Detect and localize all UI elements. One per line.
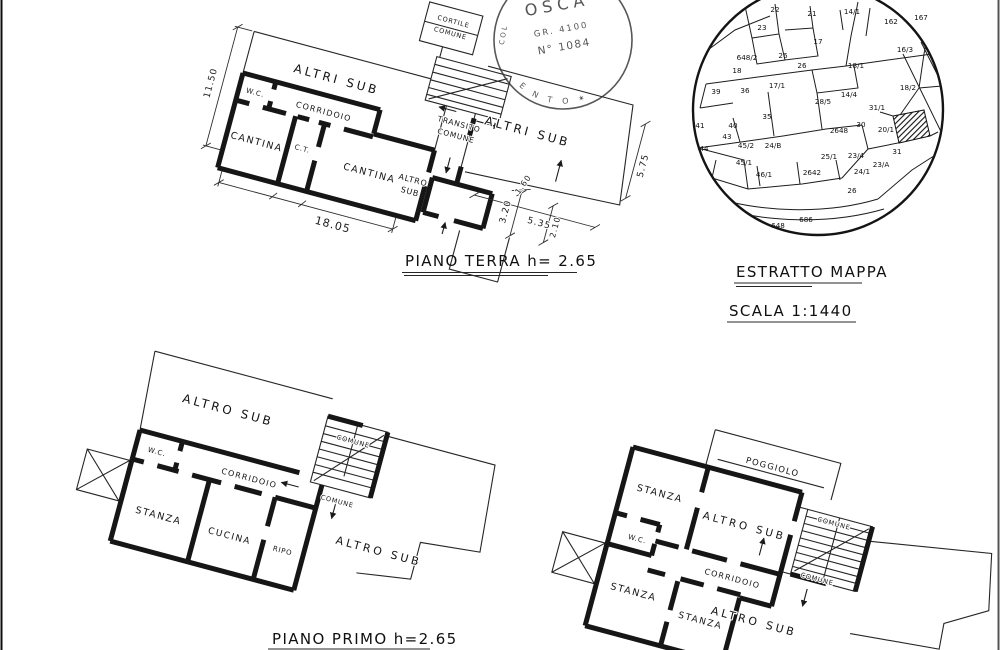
dim-3-20: 3.20 — [498, 199, 514, 225]
room-label-ct: C.T. — [294, 143, 312, 155]
svg-text:14/1: 14/1 — [844, 7, 860, 16]
svg-text:2642: 2642 — [803, 168, 821, 177]
svg-text:35: 35 — [762, 112, 771, 121]
room-label-stanza-top: STANZA — [635, 483, 684, 506]
map-captions: ESTRATTO MAPPA SCALA 1:1440 — [727, 263, 888, 322]
room-label-wc: W.C. — [627, 533, 647, 546]
piano-primo-caption: PIANO PRIMO h=2.65 — [268, 630, 458, 649]
room-label-altro-2: SUB — [400, 185, 421, 199]
piano-primo-walls — [110, 370, 388, 603]
svg-text:18: 18 — [732, 66, 742, 75]
svg-text:167: 167 — [914, 13, 928, 22]
svg-text:23/A: 23/A — [873, 160, 890, 169]
svg-text:26: 26 — [778, 51, 788, 60]
room-label-cucina: CUCINA — [207, 526, 252, 547]
svg-text:41: 41 — [695, 121, 704, 130]
room-label-stanza-bl: STANZA — [609, 581, 658, 604]
svg-text:162: 162 — [884, 17, 898, 26]
dim-5-75: 5.75 — [636, 153, 652, 179]
dim-11-50: 11.50 — [202, 67, 220, 99]
stamp-name: OSCA — [523, 0, 590, 20]
map-parcel-lines — [697, 2, 994, 220]
label-comune-top: COMUNE — [817, 515, 852, 531]
svg-text:24/B: 24/B — [765, 141, 782, 150]
svg-text:22: 22 — [770, 5, 779, 14]
dim-2-10: 2.10 — [548, 215, 562, 238]
svg-text:31: 31 — [892, 147, 901, 156]
room-label-poggiolo: POGGIOLO — [745, 456, 801, 480]
svg-text:45/2: 45/2 — [738, 141, 754, 150]
label-comune-bottom: COMUNE — [320, 493, 355, 509]
map-extract: 22 21 23 17 26 648/2 16/3 18/1 18/2 18 2… — [693, 0, 994, 235]
svg-text:648/2: 648/2 — [737, 53, 758, 62]
room-label-wc: W.C. — [245, 87, 265, 100]
svg-text:23/4: 23/4 — [848, 151, 865, 160]
room-label-cantina-left: CANTINA — [229, 130, 284, 155]
svg-text:648: 648 — [771, 221, 785, 230]
room-label-stanza: STANZA — [134, 505, 183, 528]
caption-piano-terra: PIANO TERRA h= 2.65 — [405, 252, 597, 270]
svg-text:31/1: 31/1 — [869, 103, 885, 112]
room-label-altri-sub-right: ALTRI SUB — [483, 113, 572, 149]
plan-bottom-right: STANZA POGGIOLO ALTRO SUB COMUNE COMUNE … — [541, 398, 1000, 650]
svg-text:20/1: 20/1 — [878, 125, 894, 134]
stamp-rim-left: C O L — [498, 26, 509, 46]
svg-text:18/2: 18/2 — [900, 83, 916, 92]
svg-text:2648: 2648 — [830, 126, 849, 135]
svg-text:23: 23 — [757, 23, 766, 32]
map-scale: SCALA 1:1440 — [729, 302, 853, 320]
svg-text:14/4: 14/4 — [841, 90, 858, 99]
dim-18-05: 18.05 — [313, 214, 352, 236]
svg-text:30: 30 — [856, 120, 866, 129]
subject-parcel-hatched — [893, 110, 930, 143]
svg-text:24/1: 24/1 — [854, 167, 870, 176]
room-label-wc: W.C. — [147, 446, 167, 459]
surveyor-stamp: OSCA GR. 4100 N° 1084 ✶ T R E N T O ✶ C … — [483, 0, 643, 120]
room-label-corridoio: CORRIDOIO — [220, 467, 278, 491]
map-title: ESTRATTO MAPPA — [736, 263, 888, 281]
svg-text:26: 26 — [797, 61, 807, 70]
stamp-number: N° 1084 — [537, 36, 592, 57]
room-label-altro-sub-right: ALTRO SUB — [334, 534, 423, 569]
svg-text:28/5: 28/5 — [815, 97, 831, 106]
svg-text:36: 36 — [740, 86, 750, 95]
altro-sub-room-walls — [423, 178, 492, 229]
svg-text:17: 17 — [813, 37, 822, 46]
svg-text:43: 43 — [722, 132, 731, 141]
svg-text:26: 26 — [847, 186, 857, 195]
svg-text:40: 40 — [728, 121, 738, 130]
svg-text:25/1: 25/1 — [821, 152, 837, 161]
plan-right-thin-lines — [552, 398, 1000, 650]
svg-text:21: 21 — [807, 9, 816, 18]
svg-text:44: 44 — [699, 144, 709, 153]
svg-text:45/1: 45/1 — [736, 158, 752, 167]
room-label-ripo: RIPO — [272, 545, 293, 558]
room-label-corridoio: CORRIDOIO — [703, 567, 761, 591]
dim-5-35: 5.35 — [526, 216, 552, 232]
label-comune-top: COMUNE — [336, 433, 371, 449]
plan-piano-primo: ALTRO SUB W.C. CORRIDOIO STANZA CUCINA R… — [66, 341, 509, 634]
svg-text:18/1: 18/1 — [848, 61, 864, 70]
scanned-cadastral-sheet: 11.50 18.05 5.35 5.75 3.20 1.60 2.10 ALT… — [0, 0, 1000, 650]
dim-1-60: 1.60 — [513, 173, 533, 196]
floor-plan-drawing: 11.50 18.05 5.35 5.75 3.20 1.60 2.10 ALT… — [0, 0, 1000, 650]
svg-text:17/1: 17/1 — [769, 81, 785, 90]
room-label-cantina-right: CANTINA — [342, 161, 397, 186]
svg-text:686: 686 — [799, 215, 813, 224]
svg-text:46/1: 46/1 — [756, 170, 772, 179]
svg-text:16/3: 16/3 — [897, 45, 913, 54]
svg-text:39: 39 — [711, 87, 721, 96]
caption-piano-primo: PIANO PRIMO h=2.65 — [272, 630, 458, 648]
room-label-altro-sub-center: ALTRO SUB — [701, 510, 787, 544]
piano-terra-caption: PIANO TERRA h= 2.65 — [402, 252, 597, 276]
room-label-altro-sub-top: ALTRO SUB — [181, 391, 275, 429]
